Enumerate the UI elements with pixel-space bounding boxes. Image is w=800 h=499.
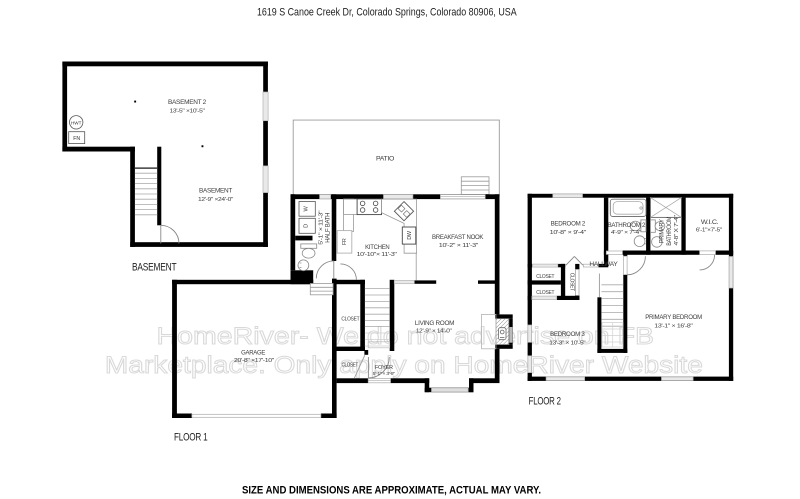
svg-text:20'-8" ×17'-10": 20'-8" ×17'-10" <box>234 358 274 364</box>
svg-text:PRIMARY: PRIMARY <box>659 219 666 243</box>
svg-text:13'-3" × 10'-5": 13'-3" × 10'-5" <box>549 340 585 346</box>
svg-text:4'-8" X 7'-4": 4'-8" X 7'-4" <box>674 215 680 246</box>
svg-text:Marketplace. Only apply on Hom: Marketplace. Only apply on HomeRiver Web… <box>105 352 703 379</box>
svg-text:BEDROOM 3: BEDROOM 3 <box>550 331 585 338</box>
svg-text:6'-1"×7'-5": 6'-1"×7'-5" <box>696 228 722 234</box>
svg-text:5'-1" × 11'-3": 5'-1" × 11'-3" <box>318 210 324 244</box>
svg-text:BEDROOM 2: BEDROOM 2 <box>551 220 586 227</box>
svg-text:KITCHEN: KITCHEN <box>365 244 389 251</box>
svg-text:12'-9" × 14'-0": 12'-9" × 14'-0" <box>416 329 452 335</box>
svg-text:HALF BATH: HALF BATH <box>324 213 331 243</box>
svg-text:FN: FN <box>73 136 80 142</box>
svg-text:4'-9" × 7'-4": 4'-9" × 7'-4" <box>611 230 641 236</box>
svg-text:10'-10"× 11'-3": 10'-10"× 11'-3" <box>357 252 397 258</box>
svg-text:BATHROOM: BATHROOM <box>666 217 673 246</box>
svg-text:13'-1" × 16'-8": 13'-1" × 16'-8" <box>654 324 693 330</box>
svg-text:LIVING ROOM: LIVING ROOM <box>415 320 454 327</box>
svg-text:13'-5" ×10'-5": 13'-5" ×10'-5" <box>170 108 205 114</box>
svg-text:FR: FR <box>342 238 348 245</box>
svg-text:CLOSET: CLOSET <box>536 290 555 296</box>
svg-text:CLOSET: CLOSET <box>536 274 555 280</box>
svg-text:BASEMENT: BASEMENT <box>199 187 233 194</box>
svg-text:BATHROOM 2: BATHROOM 2 <box>608 222 646 229</box>
svg-text:CLOSET: CLOSET <box>342 363 359 369</box>
svg-text:1619 S Canoe Creek Dr, Colorad: 1619 S Canoe Creek Dr, Colorado Springs,… <box>257 7 517 19</box>
svg-text:HWT: HWT <box>71 120 82 125</box>
svg-text:SIZE AND DIMENSIONS ARE APPROX: SIZE AND DIMENSIONS ARE APPROXIMATE, ACT… <box>242 484 541 496</box>
svg-text:D: D <box>303 224 309 228</box>
svg-text:CLOSET: CLOSET <box>569 273 575 291</box>
svg-text:10'-2" × 11'-3": 10'-2" × 11'-3" <box>439 243 479 249</box>
svg-text:CLOSET: CLOSET <box>341 317 360 323</box>
svg-text:10'-8" × 9'-4": 10'-8" × 9'-4" <box>550 230 587 236</box>
svg-text:BREAKFAST NOOK: BREAKFAST NOOK <box>432 234 484 241</box>
svg-text:HALLWAY: HALLWAY <box>589 261 617 268</box>
svg-text:12'-9" ×24'-0": 12'-9" ×24'-0" <box>198 197 233 203</box>
svg-text:PRIMARY BEDROOM: PRIMARY BEDROOM <box>645 314 702 321</box>
svg-text:FLOOR 2: FLOOR 2 <box>529 396 561 408</box>
svg-text:5'-1" × 3'-9": 5'-1" × 3'-9" <box>373 371 396 376</box>
svg-text:PATIO: PATIO <box>376 156 395 163</box>
svg-text:DW: DW <box>407 230 413 240</box>
svg-text:BASEMENT 2: BASEMENT 2 <box>168 99 207 106</box>
svg-text:FLOOR 1: FLOOR 1 <box>174 432 208 444</box>
svg-text:BASEMENT: BASEMENT <box>132 262 177 274</box>
svg-text:W.I.C.: W.I.C. <box>701 219 719 226</box>
svg-text:GARAGE: GARAGE <box>241 349 265 356</box>
